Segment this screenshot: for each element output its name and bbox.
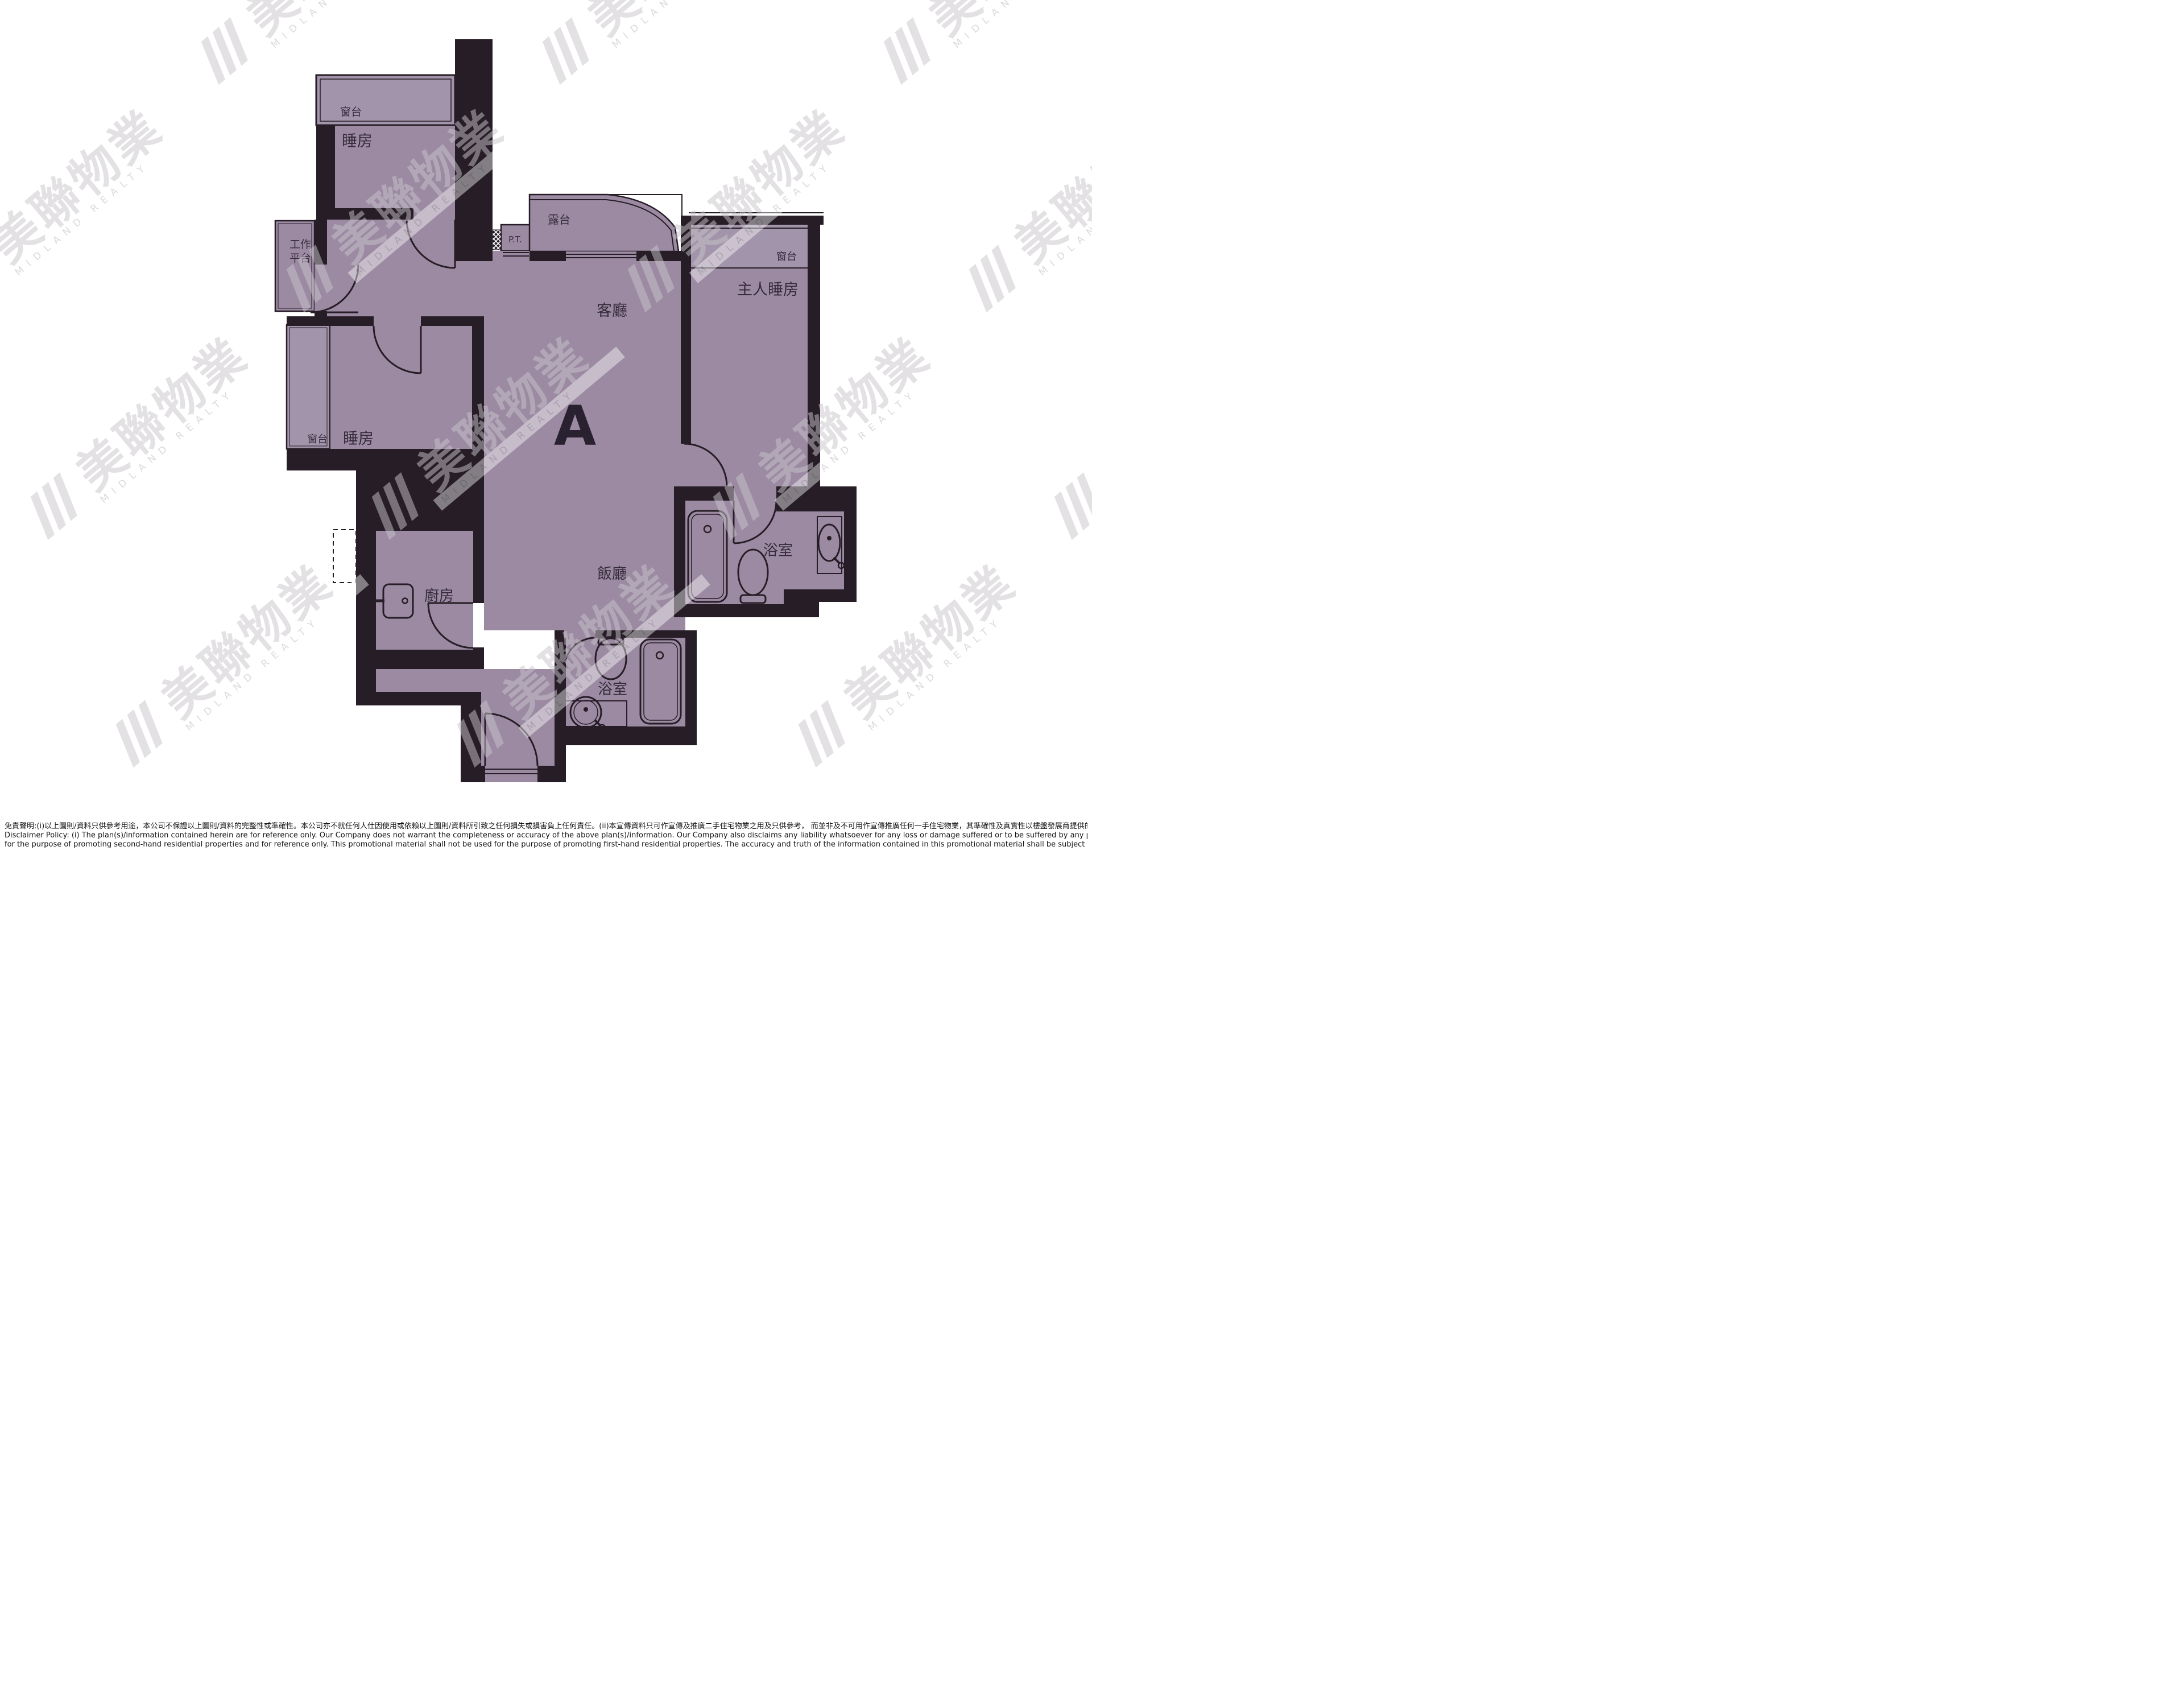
svg-text:美聯物業: 美聯物業	[663, 99, 856, 273]
svg-text:美聯物業: 美聯物業	[237, 0, 429, 46]
disclaimer-zh: 免責聲明:(i)以上圖則/資料只供參考用途，本公司不保證以上圖則/資料的完整性或…	[5, 822, 1087, 831]
midland-watermark: 美聯物業MIDLAND REALTY	[0, 81, 198, 321]
svg-text:美聯物業: 美聯物業	[66, 327, 259, 501]
svg-text:MIDLAND REALTY: MIDLAND REALTY	[0, 0, 67, 51]
midland-watermark: 美聯物業MIDLAND REALTY	[357, 309, 625, 548]
midland-watermark: 美聯物業MIDLAND REALTY	[15, 309, 284, 548]
svg-text:美聯物業: 美聯物業	[748, 327, 941, 501]
disclaimer-en-2: for the purpose of promoting second-hand…	[5, 840, 1087, 849]
midland-watermark: 美聯物業MIDLAND REALTY	[527, 0, 796, 94]
svg-text:美聯物業: 美聯物業	[0, 99, 173, 273]
midland-watermark: 美聯物業MIDLAND REALTY	[868, 0, 1092, 94]
svg-text:美聯物業: 美聯物業	[407, 327, 600, 501]
svg-text:美聯物業: 美聯物業	[0, 0, 88, 46]
midland-watermark: 美聯物業MIDLAND REALTY	[1039, 309, 1092, 548]
midland-watermark: 美聯物業MIDLAND REALTY	[613, 81, 881, 321]
midland-watermark: 美聯物業MIDLAND REALTY	[271, 81, 540, 321]
svg-text:美聯物業: 美聯物業	[322, 99, 515, 273]
midland-watermark: 美聯物業MIDLAND REALTY	[783, 536, 1052, 776]
svg-text:美聯物業: 美聯物業	[834, 554, 1027, 728]
svg-text:美聯物業: 美聯物業	[1090, 327, 1092, 501]
midland-watermark: 美聯物業MIDLAND REALTY	[442, 536, 710, 776]
svg-text:美聯物業: 美聯物業	[151, 554, 344, 728]
disclaimer-en-1: Disclaimer Policy: (i) The plan(s)/infor…	[5, 831, 1087, 840]
watermark-layer: 美聯物業MIDLAND REALTY美聯物業MIDLAND REALTY美聯物業…	[0, 0, 1092, 850]
midland-watermark: 美聯物業MIDLAND REALTY	[101, 536, 369, 776]
midland-watermark: 美聯物業MIDLAND REALTY	[186, 0, 454, 94]
floor-plan-page: 窗台 睡房 工作平台 露台 P.T. 客廳 窗台 主人睡房 窗台 睡房 A 飯廳…	[0, 0, 1092, 850]
midland-watermark: 美聯物業MIDLAND REALTY	[698, 309, 966, 548]
midland-watermark: 美聯物業MIDLAND REALTY	[954, 81, 1092, 321]
svg-text:美聯物業: 美聯物業	[493, 554, 685, 728]
midland-watermark: 美聯物業MIDLAND REALTY	[0, 0, 113, 94]
disclaimer: 免責聲明:(i)以上圖則/資料只供參考用途，本公司不保證以上圖則/資料的完整性或…	[5, 822, 1087, 849]
svg-text:美聯物業: 美聯物業	[578, 0, 771, 46]
